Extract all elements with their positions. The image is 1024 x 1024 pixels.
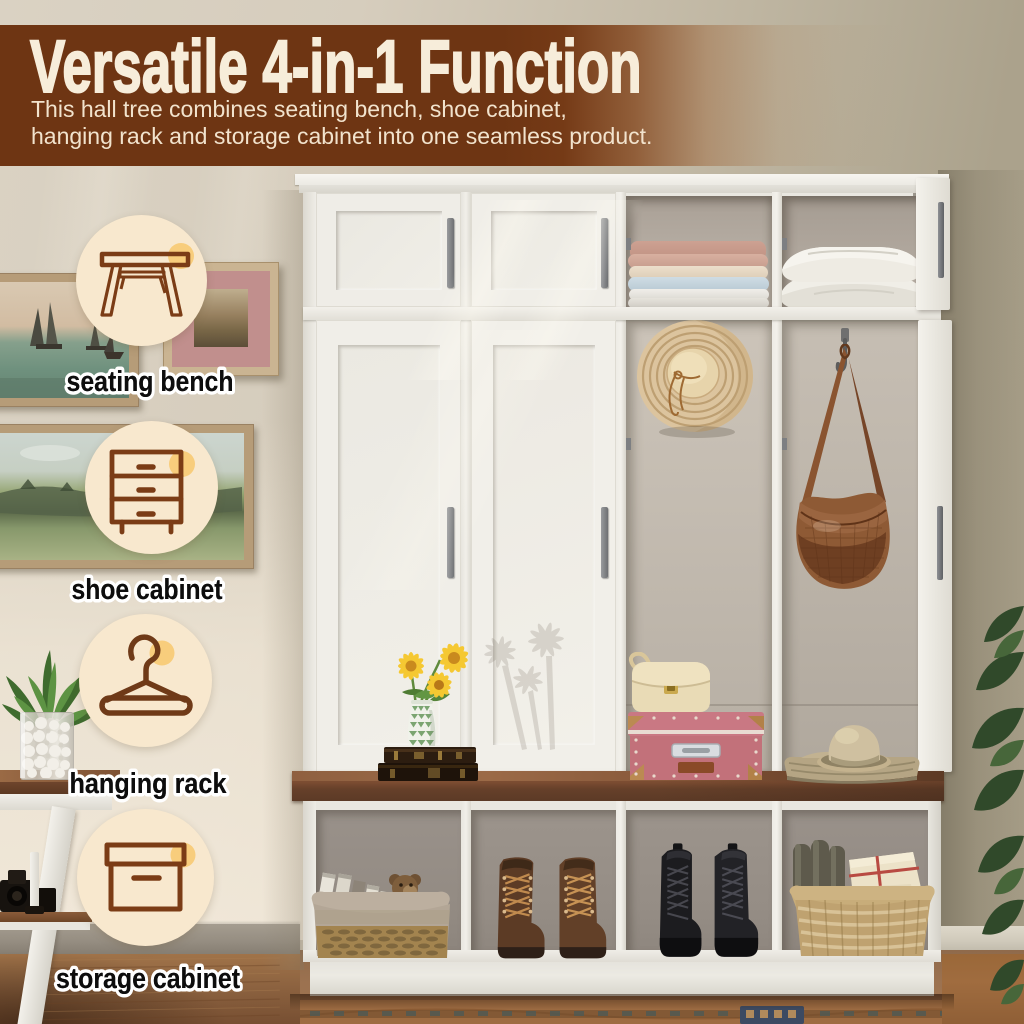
- svg-text:seating bench: seating bench: [67, 366, 234, 398]
- svg-text:hanging rack: hanging rack: [70, 768, 228, 800]
- svg-text:shoe cabinet: shoe cabinet: [72, 574, 223, 606]
- svg-text:storage cabinet: storage cabinet: [56, 963, 240, 995]
